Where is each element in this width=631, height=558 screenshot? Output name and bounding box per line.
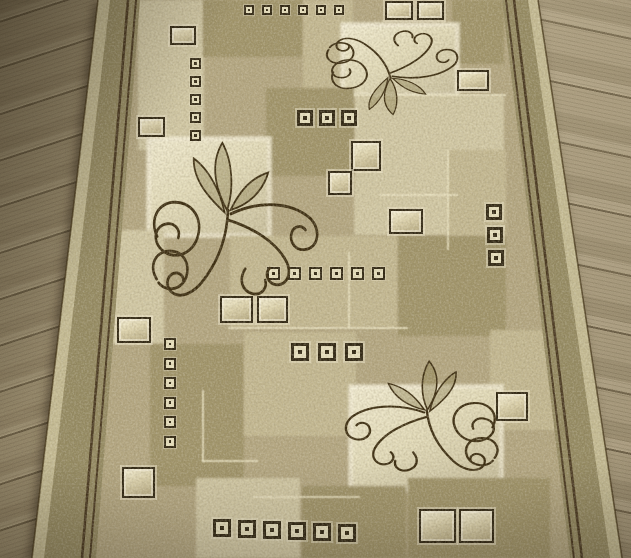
stud-square [244, 5, 254, 15]
stud-square [164, 377, 176, 389]
stud-square [288, 522, 306, 540]
stud-square [263, 521, 281, 539]
stud-square [238, 520, 256, 538]
stud-square [338, 524, 356, 542]
stud-dot [345, 531, 349, 535]
stud-square [190, 76, 201, 87]
tile-square [122, 467, 155, 498]
tile-square [138, 117, 165, 137]
stud-dot [169, 362, 172, 365]
stud-square [316, 5, 326, 15]
stud-square [351, 267, 364, 280]
patch-seam-line [447, 150, 449, 250]
stud-dot [169, 343, 172, 346]
stud-square [486, 204, 502, 220]
stud-dot [169, 440, 172, 443]
stud-square [298, 5, 308, 15]
stud-square [164, 397, 176, 409]
flourish-ornament [139, 132, 342, 309]
patch-seam-line [252, 496, 360, 498]
stud-dot [493, 233, 496, 236]
stud-square [372, 267, 385, 280]
stud-dot [492, 210, 495, 213]
flourish-ornament [326, 355, 506, 479]
tile-square [117, 317, 151, 343]
stud-dot [320, 9, 322, 11]
stud-square [291, 343, 309, 361]
stud-square [190, 58, 201, 69]
patch-seam-line [228, 327, 408, 329]
tile-square [417, 1, 444, 20]
stud-square [262, 5, 272, 15]
stud-dot [298, 350, 302, 354]
stud-dot [356, 272, 359, 275]
stud-dot [169, 401, 172, 404]
stud-square [313, 523, 331, 541]
stud-dot [352, 350, 356, 354]
tile-square [419, 509, 456, 543]
stud-square [297, 110, 313, 126]
photo-scene [0, 0, 631, 558]
stud-dot [194, 62, 196, 64]
tile-square [385, 1, 413, 20]
stud-square [487, 227, 503, 243]
stud-dot [325, 350, 329, 354]
stud-square [164, 338, 176, 350]
stud-square [164, 358, 176, 370]
rug-patch [448, 150, 506, 236]
stud-square [190, 94, 201, 105]
stud-square [280, 5, 290, 15]
stud-square [190, 130, 201, 141]
tile-square [389, 209, 423, 234]
patch-seam-line [380, 194, 458, 196]
stud-dot [284, 9, 286, 11]
stud-dot [494, 256, 497, 259]
stud-dot [245, 527, 249, 531]
stud-dot [303, 116, 306, 119]
tile-square [170, 26, 196, 45]
stud-dot [248, 9, 250, 11]
stud-dot [220, 526, 224, 530]
tile-square [351, 141, 381, 171]
stud-dot [194, 98, 196, 100]
tile-square [459, 509, 494, 543]
stud-square [164, 436, 176, 448]
stud-dot [295, 529, 299, 533]
stud-dot [266, 9, 268, 11]
stud-square [334, 5, 344, 15]
rug-patch [196, 478, 300, 558]
stud-dot [194, 134, 196, 136]
stud-square [190, 112, 201, 123]
stud-dot [338, 9, 340, 11]
stud-dot [169, 421, 172, 424]
stud-dot [169, 382, 172, 385]
patch-seam-line [202, 460, 258, 462]
patch-seam-line [202, 390, 204, 462]
stud-dot [194, 80, 196, 82]
stud-dot [320, 530, 324, 534]
stud-square [213, 519, 231, 537]
stud-dot [377, 272, 380, 275]
stud-dot [302, 9, 304, 11]
stud-square [488, 250, 504, 266]
stud-square [164, 416, 176, 428]
stud-dot [194, 116, 196, 118]
stud-dot [270, 528, 274, 532]
flourish-ornament [320, 22, 477, 123]
patch-seam-line [348, 252, 350, 328]
